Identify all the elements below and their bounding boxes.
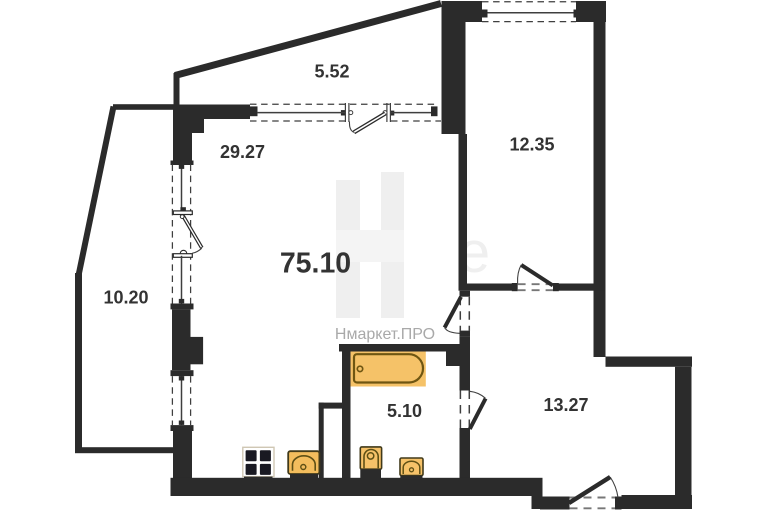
svg-text:12.35: 12.35 — [509, 135, 554, 155]
svg-text:10.20: 10.20 — [103, 288, 148, 308]
svg-text:5.10: 5.10 — [387, 401, 422, 421]
svg-text:5.52: 5.52 — [314, 62, 349, 82]
svg-text:Нмаркет.ПРО: Нмаркет.ПРО — [335, 326, 435, 343]
svg-text:75.10: 75.10 — [280, 248, 351, 280]
svg-text:29.27: 29.27 — [220, 142, 265, 162]
svg-text:13.27: 13.27 — [543, 395, 588, 415]
